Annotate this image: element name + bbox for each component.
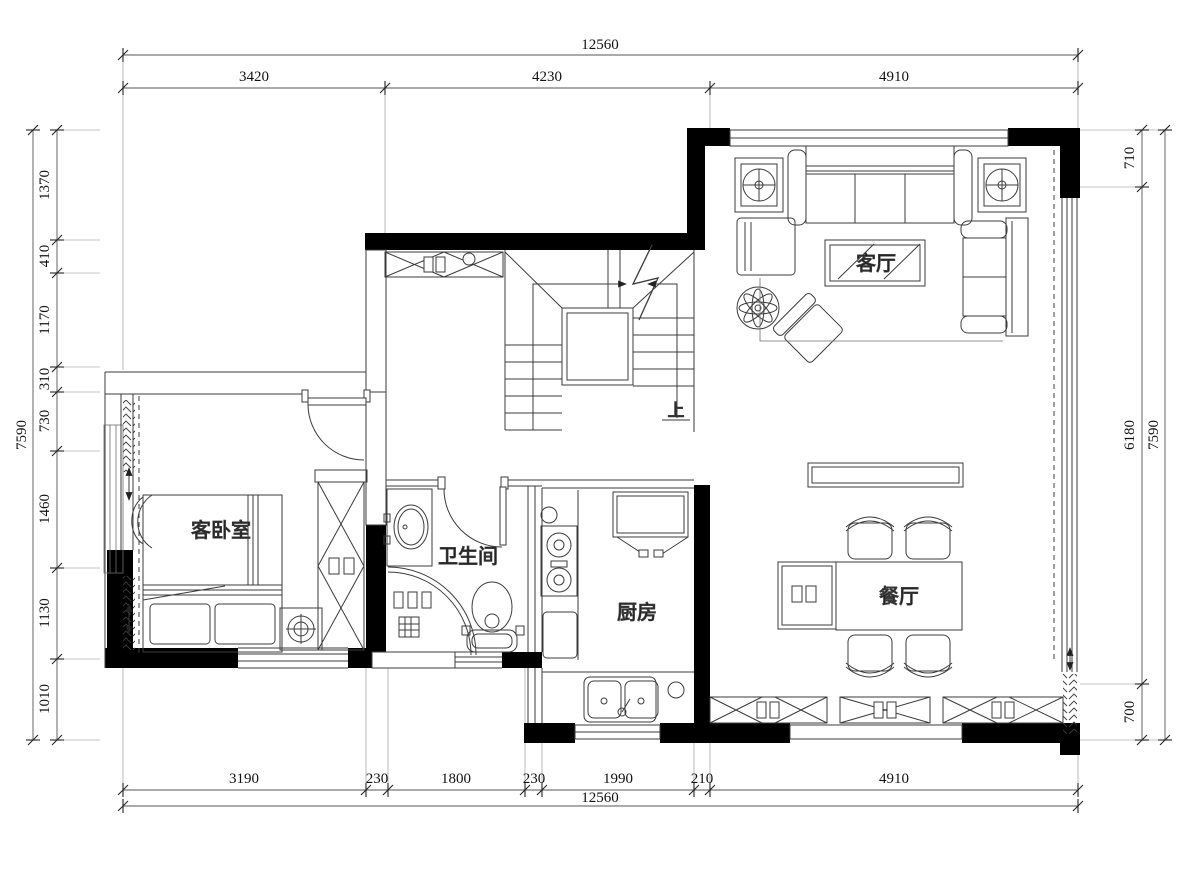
stair-direction-arrow-down [533, 284, 626, 430]
dining-chair [904, 635, 952, 677]
side-cabinet [778, 562, 836, 629]
dim-top-seg-1: 3420 [239, 69, 269, 85]
rug-outline [760, 278, 1003, 341]
toilet [462, 582, 524, 652]
dim-left-seg-8: 1010 [37, 684, 53, 714]
dining-room: 餐厅 [710, 463, 1063, 723]
thin-walls-and-windows [104, 130, 1077, 739]
kitchen: 厨房 [541, 490, 694, 722]
dim-left-seg-3: 1170 [37, 305, 53, 334]
room-label-kitchen: 厨房 [617, 601, 657, 624]
dim-right-seg-2: 6180 [1122, 420, 1138, 450]
curtain-coil-left-upper [123, 400, 135, 472]
bed [132, 495, 282, 652]
dim-left-seg-7: 1130 [37, 598, 53, 627]
drain-circle [668, 682, 684, 698]
room-label-bathroom: 卫生间 [438, 545, 498, 568]
gas-stove [541, 526, 577, 596]
dim-left-seg-6: 1460 [37, 494, 53, 524]
dining-chair [904, 517, 952, 559]
armchair [737, 218, 795, 275]
stair-direction-arrow-up [648, 284, 677, 418]
fridge-and-folding-door [613, 492, 688, 557]
double-sink [584, 677, 658, 722]
speaker-right [978, 158, 1026, 212]
dim-right-seg-3: 700 [1122, 701, 1138, 724]
sofa-three-seat [788, 146, 972, 225]
room-label-dining: 餐厅 [879, 585, 919, 608]
dim-left-seg-4: 310 [37, 368, 53, 391]
curtain-coil-right [1063, 674, 1077, 736]
dimension-ticks [26, 48, 1172, 813]
dim-bottom-seg-4: 230 [523, 771, 546, 787]
dim-top-seg-2: 4230 [532, 69, 562, 85]
floor-plan-page: 12560 3420 4230 4910 3190 230 1800 230 1… [0, 0, 1200, 874]
room-label-stair-up: 上 [668, 401, 685, 420]
guest-bedroom: 客卧室 [123, 390, 370, 656]
dim-right-seg-1: 710 [1122, 147, 1138, 170]
dim-left-seg-2: 410 [37, 245, 53, 268]
small-basin [541, 507, 557, 523]
dim-right-total: 7590 [1146, 420, 1162, 450]
dim-bottom-seg-7: 4910 [879, 771, 909, 787]
shower-area [388, 567, 476, 655]
storage-cabinet-row [710, 697, 1063, 723]
speaker-left [735, 158, 783, 212]
sofa-two-seat [961, 218, 1028, 336]
wardrobe [315, 470, 367, 650]
floor-drain [399, 617, 419, 637]
dining-chair [846, 635, 894, 677]
potted-plant [737, 287, 779, 329]
vanity-sink [384, 489, 432, 566]
room-label-living: 客厅 [856, 252, 896, 275]
floor-plan-canvas: 12560 3420 4230 4910 3190 230 1800 230 1… [0, 0, 1200, 874]
pillow [150, 604, 210, 644]
staircase: 上 [505, 245, 694, 432]
dim-left-seg-1: 1370 [37, 170, 53, 200]
extension-lines [62, 50, 1160, 795]
lounge-chair-rotated [772, 292, 846, 366]
bedside-stool [280, 608, 322, 650]
dining-chair [846, 517, 894, 559]
base-cabinet [543, 612, 577, 658]
dim-bottom-seg-5: 1990 [603, 771, 633, 787]
pillow [215, 604, 275, 644]
dim-bottom-total: 12560 [581, 790, 619, 806]
dim-left-total: 7590 [14, 420, 30, 450]
dim-bottom-seg-6: 210 [691, 771, 714, 787]
console-shelf [808, 463, 963, 487]
bathroom-door [438, 477, 508, 547]
dim-bottom-seg-2: 230 [366, 771, 389, 787]
bedroom-door [302, 390, 370, 460]
dim-bottom-seg-1: 3190 [229, 771, 259, 787]
hall-cabinet [385, 252, 503, 277]
room-label-guest-bedroom: 客卧室 [191, 519, 251, 542]
dim-left-seg-5: 730 [37, 410, 53, 433]
dim-bottom-seg-3: 1800 [441, 771, 471, 787]
bathroom: 卫生间 [384, 477, 524, 655]
dim-top-seg-3: 4910 [879, 69, 909, 85]
dim-top-total: 12560 [581, 37, 619, 53]
